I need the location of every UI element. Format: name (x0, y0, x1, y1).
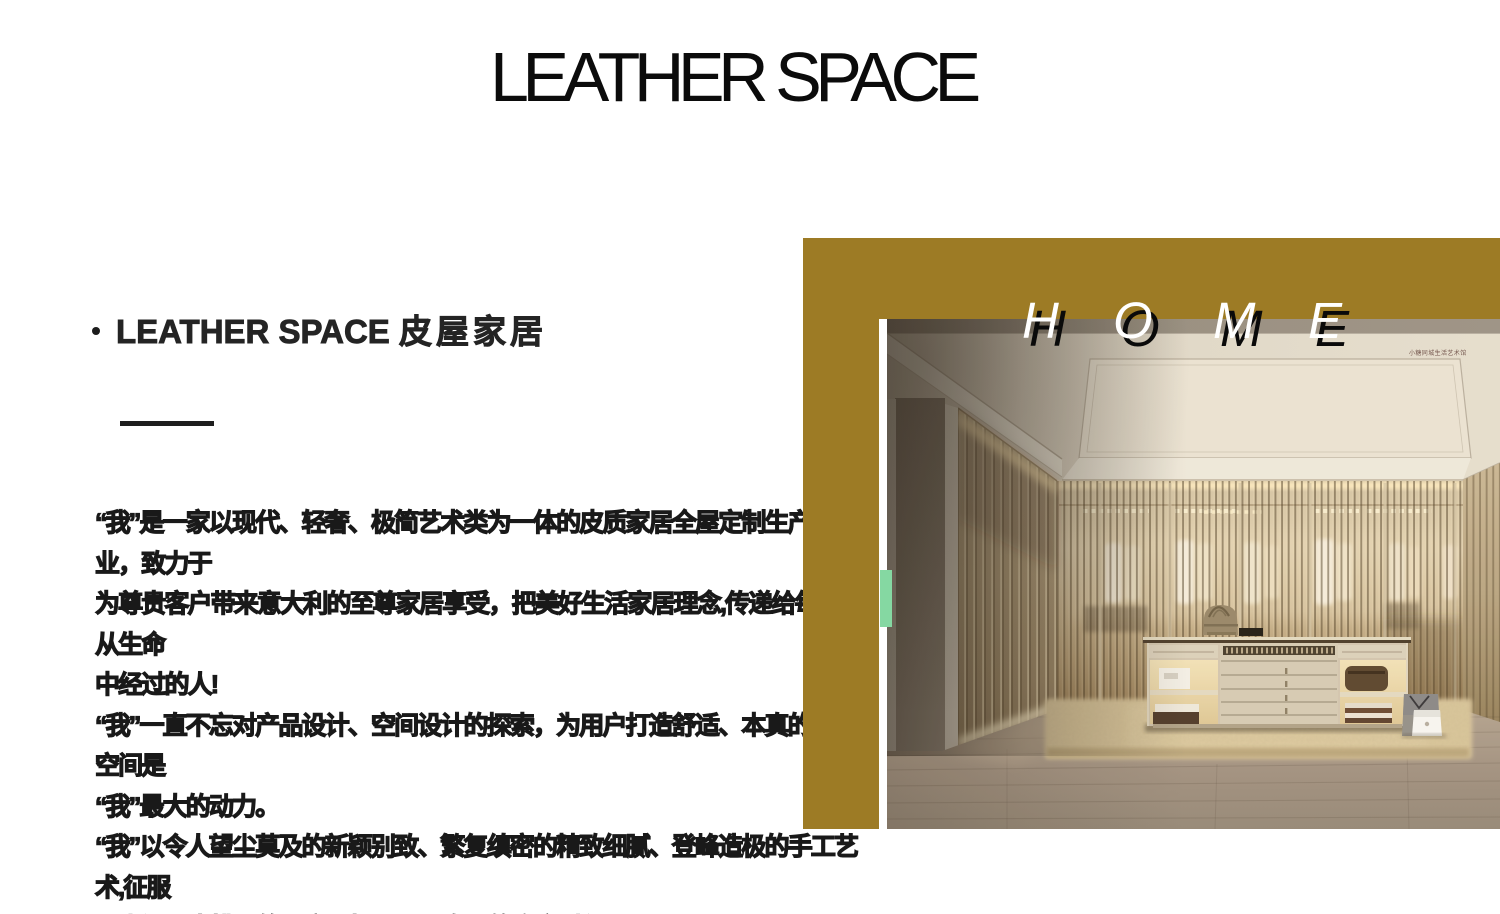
svg-text:小糖同城生活艺术馆: 小糖同城生活艺术馆 (1409, 349, 1467, 357)
